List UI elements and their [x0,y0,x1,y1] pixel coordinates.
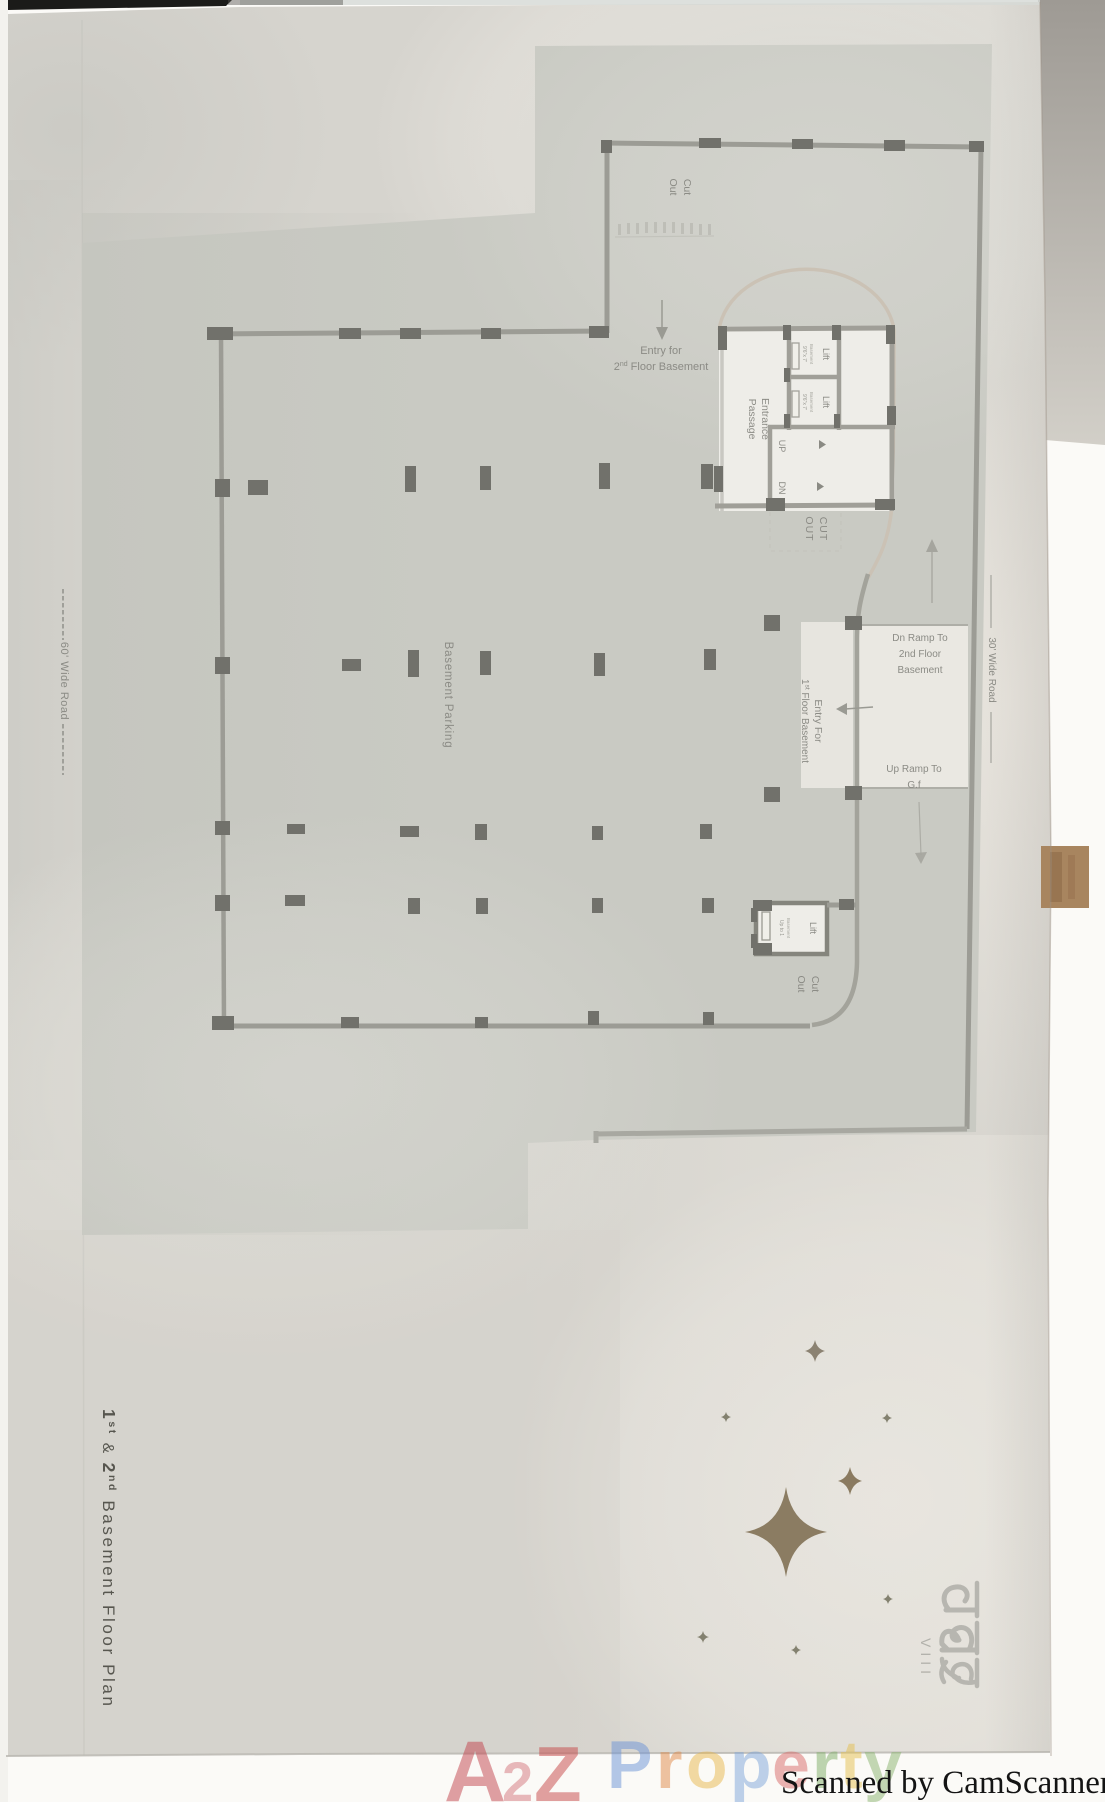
svg-text:Cut: Cut [809,976,821,992]
svg-text:Basement Parking: Basement Parking [442,642,454,749]
svg-text:Basement: Basement [897,665,942,676]
svg-text:o: o [686,1727,728,1802]
svg-text:Lift: Lift [821,396,831,409]
svg-text:Basement: Basement [809,392,814,413]
svg-text:p: p [730,1727,772,1802]
svg-text:Out: Out [795,976,807,993]
svg-text:OUT: OUT [803,516,815,541]
svg-text:Passage: Passage [746,399,758,440]
svg-text:2nd Floor: 2nd Floor [899,649,942,660]
svg-text:P: P [607,1727,652,1802]
svg-text:30' Wide Road: 30' Wide Road [986,637,997,702]
svg-text:A: A [444,1724,506,1802]
svg-text:1st Floor Basement: 1st Floor Basement [799,679,811,763]
svg-text:2: 2 [502,1750,533,1802]
svg-text:Z: Z [534,1730,582,1802]
svg-text:Dn Ramp To: Dn Ramp To [892,633,948,644]
svg-text:Entry for: Entry for [640,345,682,357]
svg-text:Basement: Basement [809,344,814,365]
svg-text:2nd Floor Basement: 2nd Floor Basement [614,361,709,373]
svg-text:VIII: VIII [918,1638,934,1679]
svg-text:Entrance: Entrance [759,398,771,440]
svg-text:Cut: Cut [681,179,693,195]
svg-text:DN: DN [777,482,787,495]
svg-text:Up to 1: Up to 1 [778,920,784,936]
svg-text:r: r [656,1727,682,1802]
svg-text:9'6"x 7': 9'6"x 7' [801,346,807,362]
svg-text:1st & 2nd Basement Floor Plan: 1st & 2nd Basement Floor Plan [99,1409,119,1709]
svg-text:Out: Out [667,179,679,196]
svg-text:G.f: G.f [907,780,921,791]
svg-text:9'6"x 7': 9'6"x 7' [801,394,807,410]
svg-text:Entry For: Entry For [812,699,824,743]
svg-text:Lift: Lift [808,922,818,935]
svg-text:Scanned by CamScanner: Scanned by CamScanner [781,1765,1105,1801]
svg-text:Up Ramp To: Up Ramp To [886,764,942,775]
svg-text:CUT: CUT [817,517,829,542]
svg-text:Basement: Basement [786,918,791,939]
svg-text:UP: UP [777,440,787,453]
svg-text:60' Wide Road: 60' Wide Road [58,642,70,720]
svg-text:Lift: Lift [821,348,831,361]
